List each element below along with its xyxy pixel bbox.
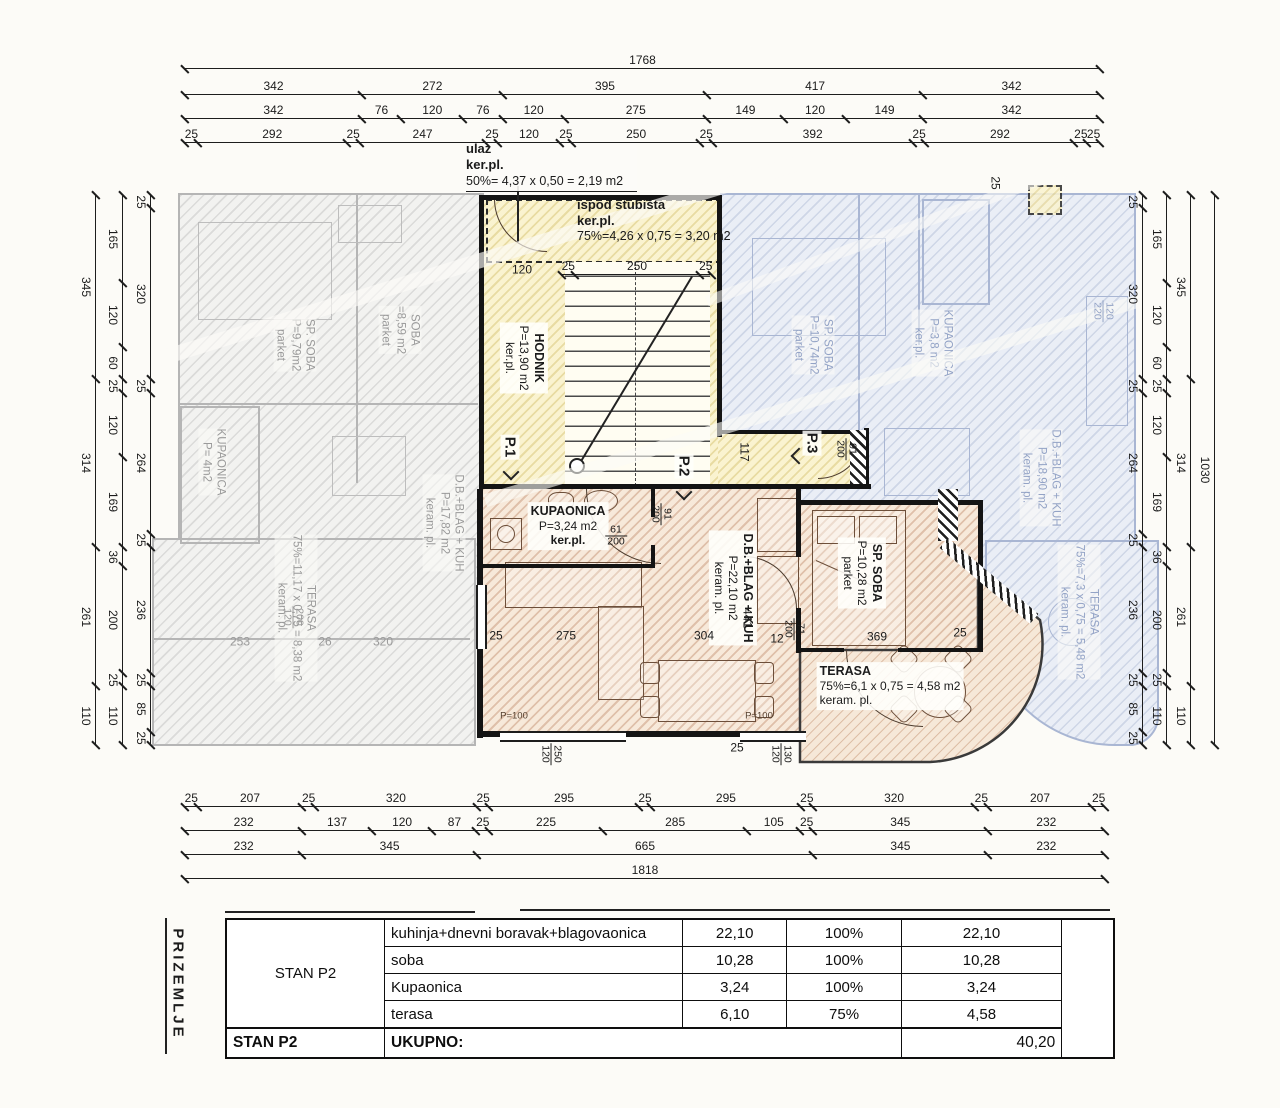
kupaonica-label: KUPAONICA P=3,24 m2 ker.pl. bbox=[528, 502, 609, 550]
table-cell-name: terasa bbox=[385, 1001, 683, 1029]
dim-value: 25 bbox=[476, 791, 489, 805]
dim-441: 441 bbox=[740, 608, 753, 628]
table-cell-value: 22,10 bbox=[683, 919, 787, 947]
dim-value: 200 bbox=[106, 609, 120, 629]
dim-value: 120 bbox=[106, 305, 120, 325]
dim-value: 250 bbox=[626, 127, 646, 141]
dim-value: 25 bbox=[476, 815, 489, 829]
window-living bbox=[500, 731, 626, 742]
dim-value: 232 bbox=[1036, 815, 1056, 829]
dim-value: 232 bbox=[234, 839, 254, 853]
dim-value: 261 bbox=[79, 607, 93, 627]
dim-value: 1818 bbox=[632, 863, 659, 877]
dim-value: 110 bbox=[106, 706, 120, 725]
dim-value: 25 bbox=[912, 127, 925, 141]
table-cell-result: 4,58 bbox=[901, 1001, 1062, 1029]
wardrobe-left-neighbor bbox=[338, 205, 402, 243]
win-p100-b: P=100 bbox=[745, 712, 773, 723]
dim-value: 275 bbox=[626, 103, 646, 117]
dim-value: 120 bbox=[106, 415, 120, 435]
dim-value: 120 bbox=[1150, 305, 1164, 325]
dim-value: 345 bbox=[890, 839, 910, 853]
fr-61-200-bath: 61200 bbox=[605, 524, 627, 547]
dim-value: 272 bbox=[422, 79, 442, 93]
dim-value: 236 bbox=[134, 600, 148, 620]
dim-value: 137 bbox=[327, 815, 347, 829]
dim-value: 395 bbox=[595, 79, 615, 93]
dim-value: 120 bbox=[422, 103, 442, 117]
dim-value: 76 bbox=[375, 103, 388, 117]
dim-value: 342 bbox=[263, 103, 283, 117]
window-kitchen bbox=[740, 731, 806, 742]
dim-value: 25 bbox=[134, 673, 148, 686]
nr-living-label: D.B.+BLAG + KUHP=18,90 m2keram. pl. bbox=[1019, 429, 1062, 526]
dim-value: 25 bbox=[1150, 673, 1164, 686]
dim-value: 417 bbox=[805, 79, 825, 93]
dim-value: 345 bbox=[79, 277, 93, 297]
dim-value: 320 bbox=[1126, 284, 1140, 304]
footer-group: STAN P2 bbox=[226, 1028, 385, 1058]
dim-value: 25 bbox=[1087, 127, 1100, 141]
dim-value: 85 bbox=[134, 702, 148, 715]
dim-value: 345 bbox=[890, 815, 910, 829]
table-cell-value: 10,28 bbox=[683, 947, 787, 974]
dim-value: 292 bbox=[990, 127, 1010, 141]
dim-value: 76 bbox=[476, 103, 489, 117]
entrance-note: ulaz ker.pl. 50%= 4,37 x 0,50 = 2,19 m2 bbox=[466, 141, 637, 192]
table-cell-value: 3,24 bbox=[683, 974, 787, 1001]
wall-block-corner bbox=[938, 489, 958, 541]
table-row: STAN P2kuhinja+dnevni boravak+blagovaoni… bbox=[226, 919, 1114, 947]
dim-value: 1768 bbox=[629, 53, 656, 67]
nr-bedroom-label: SP. SOBAP=10,74m2parket bbox=[791, 315, 834, 374]
washing-machine-drum bbox=[497, 525, 515, 543]
dim-304: 304 bbox=[694, 629, 714, 642]
dim-value: 149 bbox=[875, 103, 895, 117]
table-left-stub-line bbox=[165, 918, 167, 1054]
dim-value: 165 bbox=[1150, 229, 1164, 249]
dim-value: 247 bbox=[413, 127, 433, 141]
dim-25-topright: 25 bbox=[988, 176, 1001, 189]
dim-120-entry: 120 bbox=[512, 263, 532, 276]
dim-value: 36 bbox=[1150, 550, 1164, 563]
table-top-partial-line bbox=[520, 909, 1110, 911]
dim-value: 120 bbox=[805, 103, 825, 117]
dim-value: 665 bbox=[635, 839, 655, 853]
dining-right-neighbor bbox=[884, 428, 970, 496]
table-cell-pct: 75% bbox=[787, 1001, 901, 1029]
dim-value: 232 bbox=[1036, 839, 1056, 853]
dim-value: 25 bbox=[800, 815, 813, 829]
dim-value: 264 bbox=[1126, 453, 1140, 473]
dim-value: 1030 bbox=[1198, 457, 1212, 484]
dim-value: 165 bbox=[106, 229, 120, 249]
entry-point-p3: P.3 bbox=[803, 431, 822, 456]
footer-total: 40,20 bbox=[901, 1028, 1062, 1058]
fr-71-200-bed: 71200 bbox=[782, 618, 805, 640]
kitchen-counter bbox=[757, 498, 799, 552]
dining-table bbox=[658, 660, 756, 722]
dim-value: 25 bbox=[699, 259, 712, 273]
dim-value: 320 bbox=[884, 791, 904, 805]
dim-value: 25 bbox=[1150, 379, 1164, 392]
sofa-chaise bbox=[598, 606, 644, 700]
table-cell-result: 3,24 bbox=[901, 974, 1062, 1001]
dim-320-left: 320 bbox=[373, 635, 393, 648]
dim-25-bed: 25 bbox=[953, 626, 966, 639]
dim-value: 264 bbox=[134, 453, 148, 473]
table-group-cell: STAN P2 bbox=[226, 919, 385, 1028]
dim-value: 25 bbox=[1126, 732, 1140, 745]
dim-369: 369 bbox=[867, 630, 887, 643]
dim-value: 342 bbox=[263, 79, 283, 93]
dim-value: 110 bbox=[1150, 706, 1164, 725]
fr-91-200-hall: 91200 bbox=[649, 503, 672, 525]
entrance-floor: ker.pl. bbox=[466, 157, 504, 172]
dim-value: 342 bbox=[1002, 103, 1022, 117]
table-cell-name: soba bbox=[385, 947, 683, 974]
dim-value: 314 bbox=[79, 453, 93, 473]
dim-275: 275 bbox=[556, 629, 576, 642]
dim-value: 320 bbox=[134, 284, 148, 304]
fr-91-200-p3: 91200 bbox=[834, 438, 857, 460]
dim-value: 25 bbox=[1126, 534, 1140, 547]
table-cell-result: 10,28 bbox=[901, 947, 1062, 974]
dim-value: 25 bbox=[1126, 195, 1140, 208]
sofa bbox=[505, 562, 642, 608]
hodnik-label: HODNIK P=13,90 m2 ker.pl. bbox=[500, 322, 548, 393]
neighbor-entrance-dashed bbox=[1028, 185, 1062, 215]
entry-point-p1: P.1 bbox=[501, 435, 520, 460]
dim-value: 207 bbox=[1030, 791, 1050, 805]
dim-value: 345 bbox=[1174, 277, 1188, 297]
dim-value: 295 bbox=[554, 791, 574, 805]
nr-terrace-label: TERASA75%=7,3 x 0,75 = 5,48 m2keram. pl. bbox=[1057, 545, 1100, 680]
under-stairs-title: ispod stubišta bbox=[577, 197, 665, 212]
dim-value: 285 bbox=[665, 815, 685, 829]
dining-chair bbox=[754, 662, 774, 684]
table-cell-name: Kupaonica bbox=[385, 974, 683, 1001]
dim-value: 25 bbox=[134, 195, 148, 208]
dim-117: 117 bbox=[737, 442, 750, 461]
dim-value: 345 bbox=[380, 839, 400, 853]
dim-value: 25 bbox=[800, 791, 813, 805]
dim-value: 25 bbox=[106, 379, 120, 392]
dim-value: 36 bbox=[106, 550, 120, 563]
window-side bbox=[476, 585, 487, 649]
dim-value: 261 bbox=[1174, 607, 1188, 627]
terrace-label: TERASA 75%=6,1 x 0,75 = 4,58 m2 keram. p… bbox=[817, 662, 964, 710]
dim-value: 236 bbox=[1126, 600, 1140, 620]
table-cell-value: 6,10 bbox=[683, 1001, 787, 1029]
dim-value: 225 bbox=[536, 815, 556, 829]
table-cell-pct: 100% bbox=[787, 974, 901, 1001]
dim-value: 110 bbox=[1174, 706, 1188, 725]
under-stairs-floor: ker.pl. bbox=[577, 213, 731, 229]
table-cell-pct: 100% bbox=[787, 919, 901, 947]
living-label: D.B.+BLAG + KUH P=22,10 m2 keram. pl. bbox=[709, 530, 757, 645]
dim-26-left: 26 bbox=[318, 635, 331, 648]
fr-250-120: 250120 bbox=[539, 743, 562, 765]
dim-value: 392 bbox=[803, 127, 823, 141]
floor-plan-sheet: ulaz ker.pl. 50%= 4,37 x 0,50 = 2,19 m2 … bbox=[0, 0, 1280, 1108]
dim-value: 85 bbox=[1126, 702, 1140, 715]
dim-value: 25 bbox=[134, 534, 148, 547]
dim-value: 120 bbox=[519, 127, 539, 141]
dim-value: 295 bbox=[716, 791, 736, 805]
dim-value: 25 bbox=[1126, 673, 1140, 686]
dining-chair bbox=[640, 696, 660, 718]
bedroom-label: SP. SOBA P=10,28 m2 parket bbox=[838, 537, 886, 608]
dim-value: 232 bbox=[234, 815, 254, 829]
dim-value: 60 bbox=[106, 357, 120, 370]
table-footer-row: STAN P2UKUPNO:40,20 bbox=[226, 1028, 1114, 1058]
table-cell-name: kuhinja+dnevni boravak+blagovaonica bbox=[385, 919, 683, 947]
area-summary-table: STAN P2kuhinja+dnevni boravak+blagovaoni… bbox=[225, 918, 1115, 1059]
dim-value: 25 bbox=[302, 791, 315, 805]
entry-point-p2: P.2 bbox=[675, 454, 694, 479]
dim-value: 87 bbox=[448, 815, 461, 829]
dim-value: 105 bbox=[764, 815, 784, 829]
under-stairs-formula: 75%=4,26 x 0,75 = 3,20 m2 bbox=[577, 229, 731, 243]
dim-25-bath: 25 bbox=[489, 629, 502, 642]
dim-value: 120 bbox=[1150, 415, 1164, 435]
dim-value: 25 bbox=[1074, 127, 1087, 141]
table-left-neighbor bbox=[332, 436, 406, 496]
floor-side-label: PRIZEMLJE bbox=[169, 926, 188, 1041]
footer-label: UKUPNO: bbox=[385, 1028, 902, 1058]
dim-25-win: 25 bbox=[730, 741, 743, 754]
dim-value: 25 bbox=[185, 127, 198, 141]
dim-value: 292 bbox=[262, 127, 282, 141]
dim-value: 25 bbox=[134, 732, 148, 745]
dim-value: 25 bbox=[1126, 379, 1140, 392]
dim-value: 25 bbox=[134, 379, 148, 392]
dim-value: 60 bbox=[1150, 357, 1164, 370]
table-cell-pct: 100% bbox=[787, 947, 901, 974]
entrance-formula: 50%= 4,37 x 0,50 = 2,19 m2 bbox=[466, 173, 637, 192]
dim-value: 250 bbox=[627, 259, 647, 273]
nl-living-label: D.B.+BLAG + KUHP=17,82 m2keram. pl. bbox=[422, 474, 465, 571]
dim-value: 120 bbox=[392, 815, 412, 829]
fr-120-220-r: 120220 bbox=[1091, 300, 1114, 322]
dim-value: 110 bbox=[79, 706, 93, 725]
table-cell-result: 22,10 bbox=[901, 919, 1062, 947]
nl-bath-label: KUPAONICAP= 4m2 bbox=[199, 429, 228, 496]
dim-value: 25 bbox=[1092, 791, 1105, 805]
fr-130-120: 130120 bbox=[769, 743, 792, 765]
dim-value: 342 bbox=[1001, 79, 1021, 93]
nl-bedroom2-label: SOBA=8,59 m2parket bbox=[378, 306, 421, 354]
dim-value: 25 bbox=[485, 127, 498, 141]
dim-value: 314 bbox=[1174, 453, 1188, 473]
table-top-partial-line bbox=[225, 911, 475, 913]
dim-value: 25 bbox=[559, 127, 572, 141]
table-empty-column bbox=[1062, 919, 1114, 1058]
dim-value: 169 bbox=[106, 492, 120, 512]
dining-chair bbox=[640, 662, 660, 684]
dim-value: 149 bbox=[735, 103, 755, 117]
dim-value: 207 bbox=[240, 791, 260, 805]
win-p100-a: P=100 bbox=[500, 712, 528, 723]
dim-253-left: 253 bbox=[230, 635, 250, 648]
dim-value: 169 bbox=[1150, 492, 1164, 512]
under-stairs-note: ispod stubišta ker.pl. 75%=4,26 x 0,75 =… bbox=[577, 197, 731, 244]
dim-value: 120 bbox=[524, 103, 544, 117]
fr-200-120-l: 200120 bbox=[281, 606, 304, 628]
dim-value: 25 bbox=[106, 673, 120, 686]
dim-value: 200 bbox=[1150, 609, 1164, 629]
dim-value: 320 bbox=[386, 791, 406, 805]
dim-value: 25 bbox=[638, 791, 651, 805]
